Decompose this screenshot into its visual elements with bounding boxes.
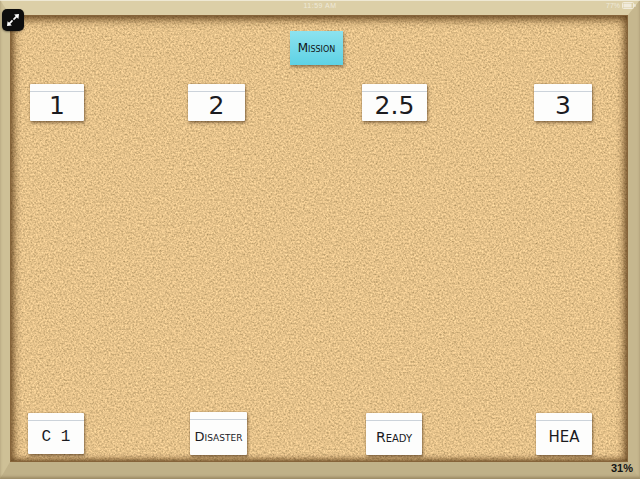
note-card-disaster[interactable]: Disaster xyxy=(190,412,247,455)
cork-texture xyxy=(11,16,627,461)
note-card-2[interactable]: 2 xyxy=(188,84,245,121)
card-label: C 1 xyxy=(42,428,71,446)
note-card-2-5[interactable]: 2.5 xyxy=(362,84,427,121)
corkboard-app: 11:59 AM 77% Mission 1 2 2.5 3 xyxy=(0,0,640,479)
status-bar: 11:59 AM 77% xyxy=(0,0,640,12)
cork-board[interactable] xyxy=(10,15,628,462)
status-time: 11:59 AM xyxy=(0,0,640,11)
battery-percent-label: 77% xyxy=(606,0,620,11)
note-card-3[interactable]: 3 xyxy=(534,84,592,121)
expand-button[interactable] xyxy=(2,9,24,31)
note-card-1[interactable]: 1 xyxy=(30,84,84,121)
note-card-c1[interactable]: C 1 xyxy=(28,413,84,454)
card-label: HEA xyxy=(548,428,579,446)
zoom-level-indicator: 31% xyxy=(611,462,633,474)
card-label: Disaster xyxy=(195,429,243,444)
expand-icon xyxy=(4,11,22,29)
sticky-note-label: Mission xyxy=(298,41,336,55)
card-label: 2 xyxy=(209,91,225,120)
card-label: 1 xyxy=(49,91,65,120)
note-card-hea[interactable]: HEA xyxy=(536,413,592,455)
card-label: Ready xyxy=(376,429,412,445)
note-card-ready[interactable]: Ready xyxy=(366,413,422,455)
battery-icon xyxy=(622,2,636,9)
status-battery-group: 77% xyxy=(606,0,636,11)
card-label: 3 xyxy=(555,91,571,120)
card-label: 2.5 xyxy=(375,91,415,120)
sticky-note-mission[interactable]: Mission xyxy=(290,31,343,65)
